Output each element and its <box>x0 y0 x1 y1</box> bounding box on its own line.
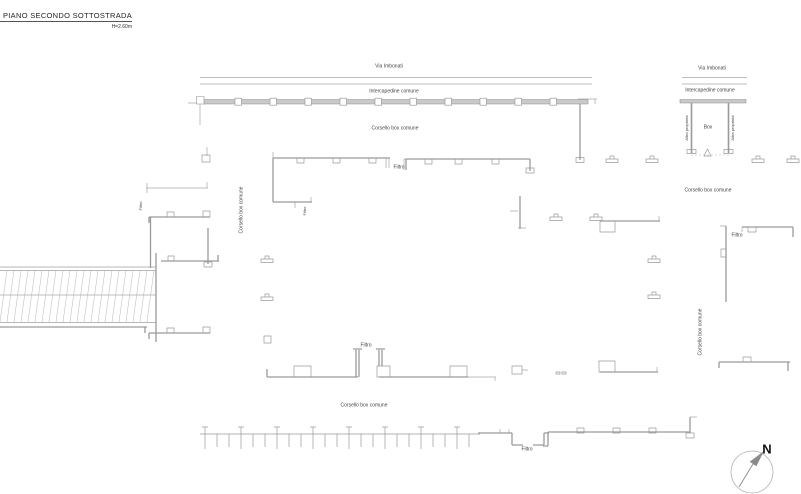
street-label-right: Via Imbonati <box>698 67 726 72</box>
filtro-label-upper-left: Filtro <box>393 166 404 171</box>
corsello-label-left-vertical: Corsello box comune <box>240 187 245 234</box>
intercapedine-label-right: Intercapedine comune <box>685 89 734 94</box>
filtro-label-mid-vertical: Filtro <box>303 207 307 216</box>
compass-circle <box>731 451 773 493</box>
corsello-label-right-vertical: Corsello box comune <box>699 309 704 356</box>
filtro-label-bottom: Filtro <box>521 448 532 453</box>
filtro-label-left-vertical: Filtro <box>139 202 143 211</box>
wall-end-pads <box>167 150 756 439</box>
altra-proprieta-label-left: Altra proprietà <box>685 115 689 140</box>
floor-plan-canvas <box>0 0 801 494</box>
filtro-label-right: Filtro <box>731 234 742 239</box>
ramp-hatch <box>0 270 154 322</box>
corsello-label-right: Corsello box comune <box>685 189 732 194</box>
boundary-fence <box>200 427 480 449</box>
compass-needle <box>739 464 753 487</box>
intercapedine-label-top: Intercapedine comune <box>369 90 418 95</box>
street-retaining-wall <box>203 100 746 105</box>
interior-walls <box>0 104 793 446</box>
altra-proprieta-label-right: Altra proprietà <box>731 115 735 140</box>
column-footings <box>261 156 799 301</box>
filtro-label-mid-bottom: Filtro <box>360 344 371 349</box>
box-room-label: Box <box>704 126 713 131</box>
compass <box>731 451 773 493</box>
north-label: N <box>762 442 771 457</box>
floor-plan-page: PIANO SECONDO SOTTOSTRADA H=2.60m <box>0 0 801 494</box>
corsello-label-bottom: Corsello box comune <box>341 404 388 409</box>
street-label-top: Via Imbonati <box>375 65 403 70</box>
corsello-label-top: Corsello box comune <box>372 127 419 132</box>
